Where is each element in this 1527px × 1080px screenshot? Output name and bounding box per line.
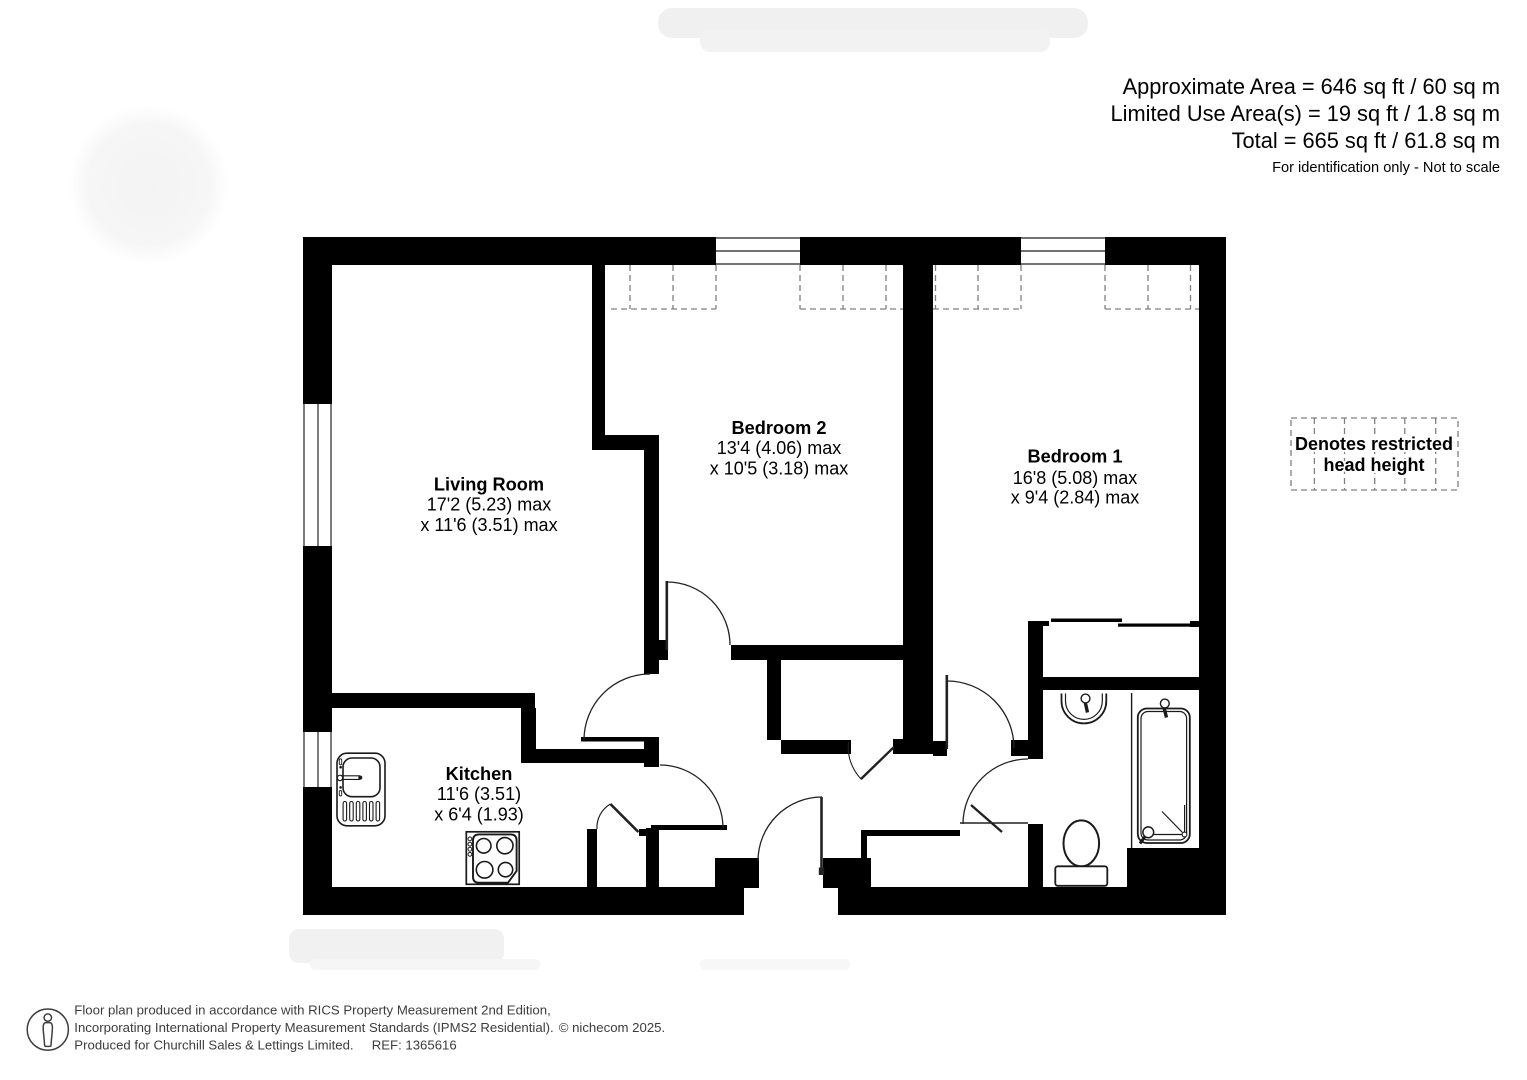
- svg-text:Total = 665 sq ft / 61.8 sq m: Total = 665 sq ft / 61.8 sq m: [1232, 128, 1500, 153]
- svg-text:Denotes restricted: Denotes restricted: [1295, 434, 1453, 454]
- svg-text:16'8 (5.08) max: 16'8 (5.08) max: [1013, 468, 1138, 488]
- svg-text:© nichecom 2025.: © nichecom 2025.: [559, 1020, 666, 1035]
- svg-text:Living Room: Living Room: [434, 475, 544, 495]
- svg-text:x 10'5 (3.18) max: x 10'5 (3.18) max: [710, 459, 849, 479]
- svg-text:Approximate Area = 646 sq ft /: Approximate Area = 646 sq ft / 60 sq m: [1123, 74, 1500, 99]
- svg-text:Kitchen: Kitchen: [446, 764, 513, 784]
- svg-text:Bedroom 2: Bedroom 2: [732, 418, 827, 438]
- svg-text:x 6'4 (1.93): x 6'4 (1.93): [434, 805, 523, 825]
- svg-text:x 11'6 (3.51) max: x 11'6 (3.51) max: [420, 515, 557, 535]
- svg-text:Produced for Churchill Sales &: Produced for Churchill Sales & Lettings …: [74, 1038, 353, 1053]
- svg-text:REF: 1365616: REF: 1365616: [372, 1038, 457, 1053]
- svg-text:For identification only - Not: For identification only - Not to scale: [1272, 160, 1500, 176]
- svg-text:Limited Use Area(s) = 19 sq ft: Limited Use Area(s) = 19 sq ft / 1.8 sq …: [1111, 101, 1500, 126]
- svg-text:13'4 (4.06) max: 13'4 (4.06) max: [717, 438, 842, 458]
- svg-text:head height: head height: [1323, 455, 1424, 475]
- svg-text:Bedroom 1: Bedroom 1: [1028, 447, 1123, 467]
- svg-text:x 9'4 (2.84) max: x 9'4 (2.84) max: [1011, 488, 1140, 508]
- svg-text:Floor plan produced in accorda: Floor plan produced in accordance with R…: [74, 1003, 550, 1018]
- svg-text:17'2 (5.23) max: 17'2 (5.23) max: [427, 495, 552, 515]
- svg-text:11'6 (3.51): 11'6 (3.51): [437, 784, 521, 804]
- svg-text:Incorporating International Pr: Incorporating International Property Mea…: [74, 1020, 553, 1035]
